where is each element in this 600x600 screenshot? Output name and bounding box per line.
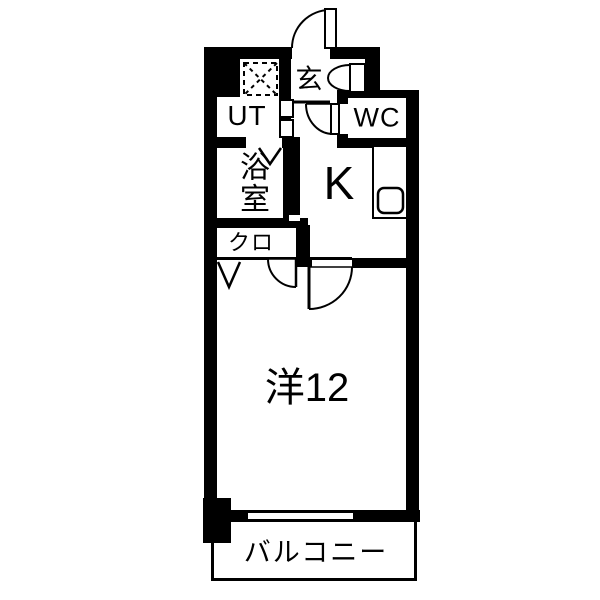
kitchen-door-icon [309,267,352,309]
wc-door-icon [306,104,339,134]
room-label-kitchen: K [324,160,355,206]
kitchen-counter-icon [373,146,407,218]
shoe-cabinet-doors-icon [328,64,365,92]
entrance-door-icon [292,9,336,48]
closet-folding-door-icon [218,262,240,287]
room-label-bathroom: 浴室 [236,151,266,215]
closet-swing-door-icon [268,259,296,287]
room-label-genkan: 玄 [296,67,323,94]
room-label-utility: UT [227,102,266,130]
floorplan-canvas: 玄 UT WC K 浴室 クロ 洋12 バルコニー [0,0,600,600]
room-label-balcony: バルコニー [244,540,388,567]
washing-machine-pan-icon [244,63,277,95]
ut-sliding-door-icon [280,100,293,137]
room-label-main-room: 洋12 [265,368,350,408]
room-label-toilet: WC [354,105,401,132]
room-label-closet: クロ [228,232,274,254]
